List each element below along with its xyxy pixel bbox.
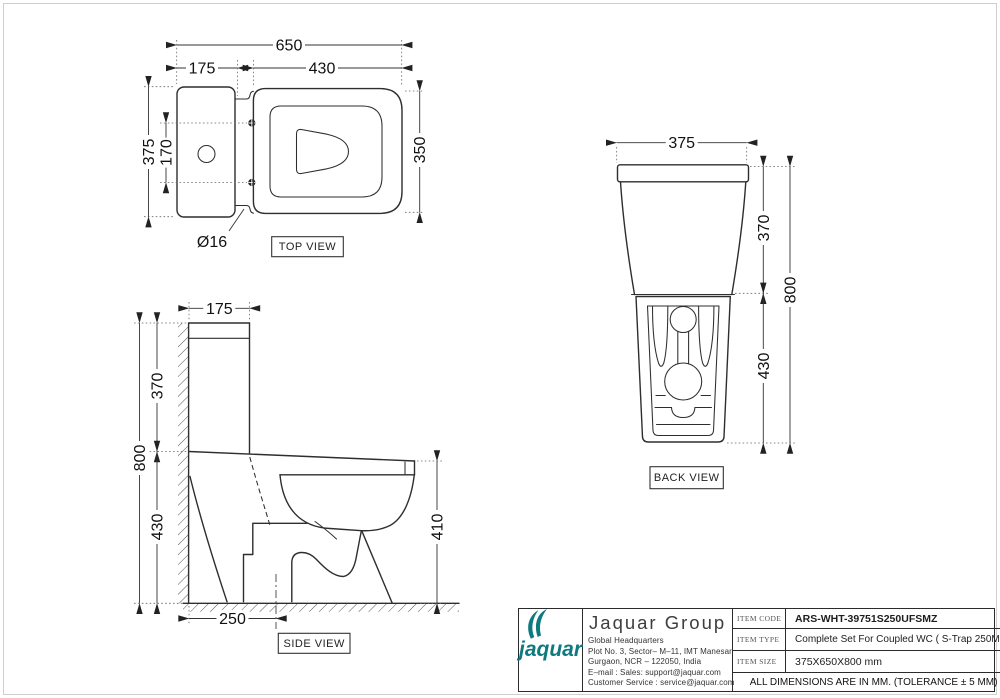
tolerance-note: ALL DIMENSIONS ARE IN MM. (TOLERANCE ± 5… (733, 673, 1000, 691)
bowl-opening (297, 129, 349, 173)
side-view: 175 370 430 800 41 (131, 300, 459, 654)
dim-370-side: 370 (150, 373, 167, 400)
item-code-value: ARS-WHT-39751S250UFSMZ (786, 609, 1000, 628)
dim-375-top: 375 (141, 139, 158, 166)
dim-430-top: 430 (309, 61, 336, 78)
hidden-flush-line (250, 457, 271, 527)
left-prong (653, 306, 668, 366)
seat-inner-ring (270, 106, 382, 197)
address-line: Gurgaon, NCR – 122050, India (588, 657, 732, 668)
jaquar-swoosh-icon (519, 609, 553, 643)
item-size-value: 375X650X800 mm (786, 651, 1000, 672)
dim-350: 350 (412, 137, 429, 164)
front-leg (362, 531, 393, 604)
dim-800-back: 800 (783, 277, 800, 304)
back-view: 375 370 430 800 BACK VIEW (617, 134, 800, 489)
pedestal-back-curve (190, 477, 227, 602)
flush-top-circle (670, 307, 696, 333)
dim-410: 410 (430, 514, 447, 541)
top-view: 650 175 430 375 170 (140, 37, 429, 257)
dim-430-back: 430 (756, 353, 773, 380)
dim-170: 170 (159, 139, 176, 166)
trap-housing (244, 523, 308, 601)
drawing-canvas: 650 175 430 375 170 (0, 0, 1000, 698)
item-code-label: ITEM CODE (733, 609, 786, 628)
item-type-row: ITEM TYPE Complete Set For Coupled WC ( … (733, 629, 1000, 651)
top-view-label: TOP VIEW (279, 241, 337, 253)
tank-lid-back (618, 165, 749, 182)
trap-curve (292, 532, 361, 602)
dim-650: 650 (276, 38, 303, 55)
bowl-lip-curve (315, 522, 337, 540)
right-prong (699, 306, 714, 366)
address-line: Global Headquarters (588, 636, 732, 647)
bowl-back-curve (280, 475, 362, 531)
back-view-label: BACK VIEW (654, 472, 720, 484)
address-line: Plot No. 3, Sector– M–11, IMT Manesar (588, 647, 732, 658)
tolerance-note-row: ALL DIMENSIONS ARE IN MM. (TOLERANCE ± 5… (733, 673, 1000, 691)
bolt-hole-top (248, 119, 255, 126)
dim-175-top: 175 (189, 61, 216, 78)
address-line: E–mail : Sales: support@jaquar.com (588, 668, 732, 679)
drawing-sheet: 650 175 430 375 170 (0, 0, 1000, 698)
tank-left-edge (621, 182, 635, 295)
tank-right-edge (732, 182, 746, 295)
dim-250: 250 (219, 611, 246, 628)
bolt-hole-bottom (248, 179, 255, 186)
dim-375-back: 375 (668, 135, 695, 152)
item-type-label: ITEM TYPE (733, 629, 786, 650)
bowl-rim-back (648, 306, 720, 436)
tank-hole (198, 146, 215, 163)
tank-outline-top (177, 87, 235, 217)
seat-top (189, 452, 415, 462)
item-table: ITEM CODE ARS-WHT-39751S250UFSMZ ITEM TY… (733, 609, 1000, 691)
flush-big-circle (665, 363, 702, 400)
address-line: Customer Service : service@jaquar.com (588, 678, 732, 689)
dim-430-side: 430 (150, 514, 167, 541)
wall-hatch (178, 323, 189, 603)
side-view-label: SIDE VIEW (284, 638, 345, 650)
item-code-row: ITEM CODE ARS-WHT-39751S250UFSMZ (733, 609, 1000, 629)
bowl-front-curve (362, 475, 415, 531)
item-type-value: Complete Set For Coupled WC ( S-Trap 250… (786, 629, 1000, 650)
dim-hole-dia: Ø16 (197, 234, 227, 251)
dim-175-side: 175 (206, 301, 233, 318)
company-address-block: Jaquar Group Global Headquarters Plot No… (583, 609, 733, 691)
dim-370-back: 370 (756, 215, 773, 242)
item-size-row: ITEM SIZE 375X650X800 mm (733, 651, 1000, 673)
company-name: Jaquar Group (589, 612, 732, 634)
flush-bump (672, 408, 695, 418)
item-size-label: ITEM SIZE (733, 651, 786, 672)
brand-logo: jaquar (519, 609, 583, 691)
dim-800-side: 800 (132, 445, 149, 472)
title-block: jaquar Jaquar Group Global Headquarters … (518, 608, 995, 692)
